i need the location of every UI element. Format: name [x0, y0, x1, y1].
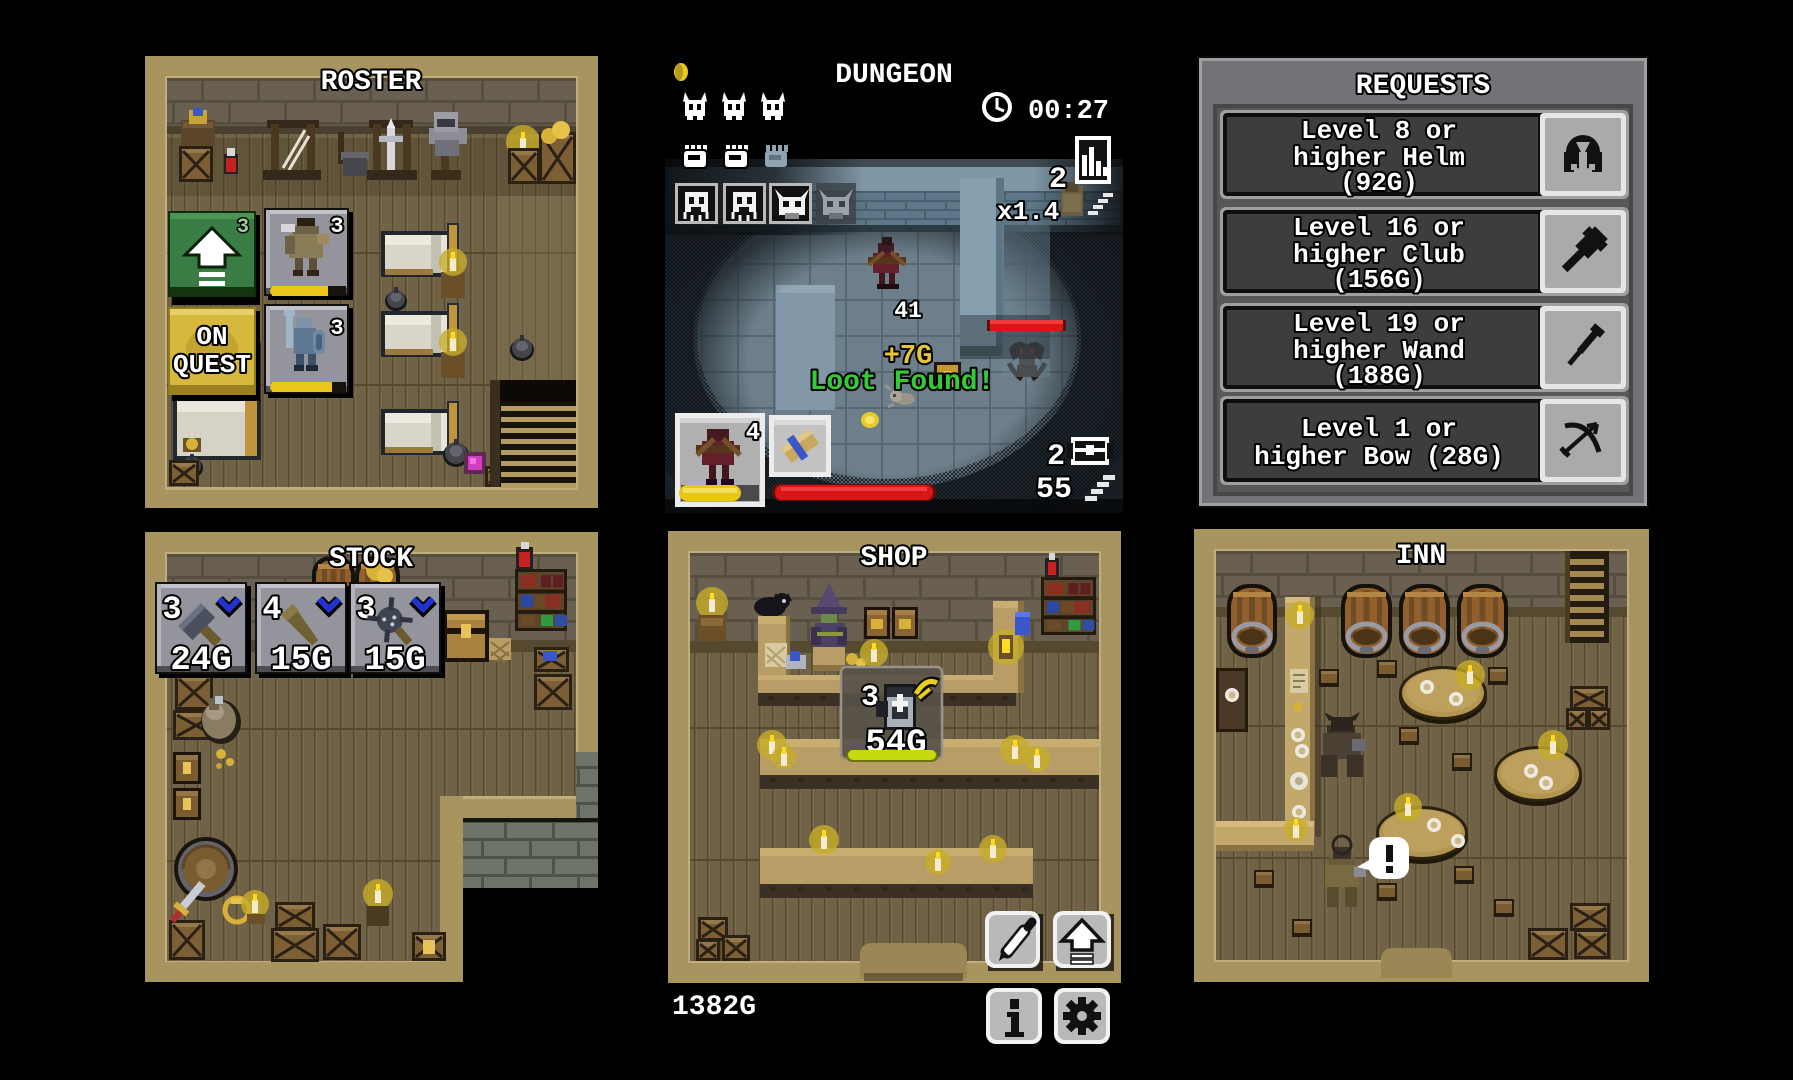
- svg-text:ON: ON: [196, 322, 227, 352]
- svg-text:3: 3: [330, 214, 343, 239]
- svg-text:2: 2: [1049, 163, 1067, 197]
- svg-text:Level 16 or: Level 16 or: [1293, 213, 1465, 243]
- svg-text:ROSTER: ROSTER: [321, 67, 422, 98]
- svg-text:55: 55: [1036, 473, 1072, 507]
- svg-text:DUNGEON: DUNGEON: [835, 60, 953, 91]
- svg-text:SHOP: SHOP: [860, 543, 927, 574]
- svg-text:(156G): (156G): [1332, 265, 1426, 295]
- svg-text:STOCK: STOCK: [329, 544, 413, 575]
- svg-text:1382G: 1382G: [672, 992, 756, 1023]
- svg-text:2: 2: [1047, 440, 1065, 474]
- svg-text:x1.4: x1.4: [997, 197, 1059, 227]
- svg-text:3: 3: [356, 591, 375, 628]
- svg-text:41: 41: [894, 298, 922, 324]
- svg-text:(92G): (92G): [1340, 168, 1418, 198]
- svg-text:00:27: 00:27: [1028, 97, 1109, 127]
- svg-text:REQUESTS: REQUESTS: [1356, 71, 1490, 102]
- svg-text:3: 3: [237, 216, 249, 239]
- svg-text:3: 3: [162, 591, 181, 628]
- svg-text:(188G): (188G): [1332, 361, 1426, 391]
- svg-text:4: 4: [746, 420, 760, 447]
- svg-text:INN: INN: [1396, 541, 1446, 572]
- svg-text:4: 4: [262, 591, 281, 628]
- svg-text:higher Bow (28G): higher Bow (28G): [1254, 442, 1504, 472]
- svg-text:Loot Found!: Loot Found!: [810, 367, 995, 398]
- svg-text:15G: 15G: [364, 642, 425, 680]
- svg-text:15G: 15G: [270, 642, 331, 680]
- svg-text:Level 8 or: Level 8 or: [1301, 116, 1457, 146]
- svg-text:QUEST: QUEST: [173, 350, 251, 380]
- svg-text:3: 3: [330, 316, 343, 341]
- svg-text:24G: 24G: [170, 642, 231, 680]
- svg-text:Level 1 or: Level 1 or: [1301, 414, 1457, 444]
- svg-text:Level 19 or: Level 19 or: [1293, 309, 1465, 339]
